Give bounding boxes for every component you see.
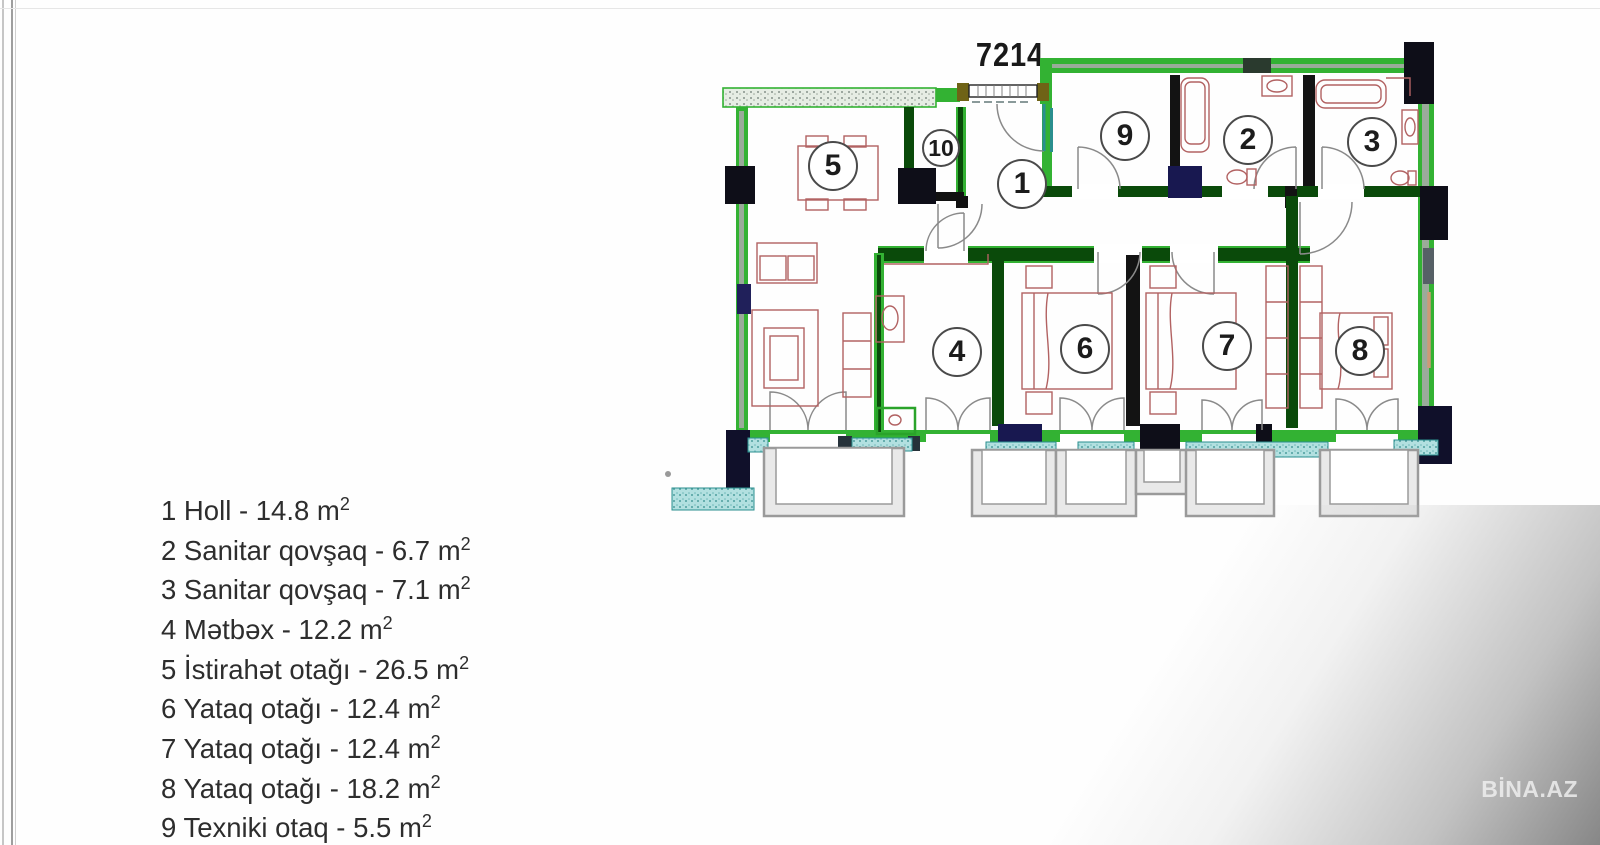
room-marker-8: 8: [1335, 326, 1385, 376]
legend-item: 3 Sanitar qovşaq - 7.1 m2: [161, 567, 471, 607]
survey-dot: [665, 471, 671, 477]
room-marker-9: 9: [1100, 111, 1150, 161]
legend-item: 8 Yataq otağı - 18.2 m2: [161, 766, 471, 806]
page-edge-line: [15, 0, 16, 845]
page-edge-line: [11, 0, 13, 845]
room-marker-1: 1: [997, 159, 1047, 209]
legend-item: 2 Sanitar qovşaq - 6.7 m2: [161, 528, 471, 568]
legend-item: 4 Mətbəx - 12.2 m2: [161, 607, 471, 647]
room-marker-10: 10: [922, 129, 960, 167]
floor-plan-drawing: [640, 30, 1470, 530]
room-marker-5: 5: [808, 141, 858, 191]
floor-plan: 7214: [640, 30, 1470, 530]
scanned-listing-page: Eyvan sahəsi 3.5 m2 7214: [0, 0, 1600, 845]
room-marker-4: 4: [932, 327, 982, 377]
legend-item: 5 İstirahət otağı - 26.5 m2: [161, 647, 471, 687]
site-watermark: BİNA.AZ: [1481, 776, 1578, 803]
room-marker-6: 6: [1060, 324, 1110, 374]
legend-item: 1 Holl - 14.8 m2: [161, 488, 471, 528]
columns-layer: [725, 42, 1452, 506]
room-marker-7: 7: [1202, 321, 1252, 371]
room-legend: 1 Holl - 14.8 m2 2 Sanitar qovşaq - 6.7 …: [161, 488, 471, 845]
room-marker-2: 2: [1223, 115, 1273, 165]
walls-layer: [723, 58, 1436, 442]
cutoff-title-text: Eyvan sahəsi 3.5 m2: [126, 0, 546, 9]
legend-item: 9 Texniki otaq - 5.5 m2: [161, 805, 471, 845]
legend-item: 6 Yataq otağı - 12.4 m2: [161, 686, 471, 726]
legend-item: 7 Yataq otağı - 12.4 m2: [161, 726, 471, 766]
room-marker-3: 3: [1347, 117, 1397, 167]
page-edge-line: [2, 0, 4, 845]
